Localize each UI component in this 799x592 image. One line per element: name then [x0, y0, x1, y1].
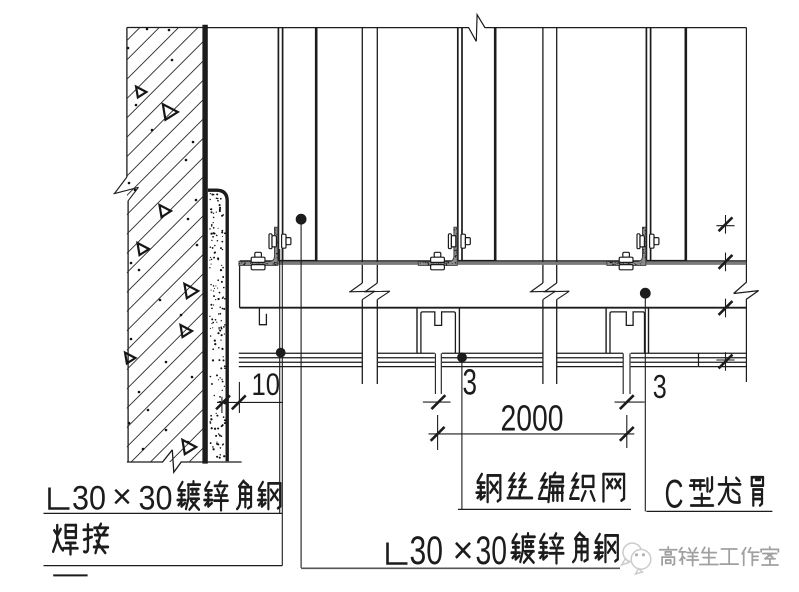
svg-text:30: 30: [476, 529, 508, 573]
svg-text:10: 10: [252, 366, 281, 402]
svg-text:×: ×: [112, 478, 132, 516]
svg-text:3: 3: [653, 368, 667, 405]
svg-text:3: 3: [463, 362, 478, 403]
svg-text:C: C: [665, 473, 684, 517]
svg-text:2000: 2000: [501, 397, 564, 438]
svg-text:30: 30: [72, 480, 106, 518]
svg-text:×: ×: [453, 530, 474, 572]
svg-text:30: 30: [410, 529, 444, 573]
svg-text:30: 30: [139, 480, 173, 518]
